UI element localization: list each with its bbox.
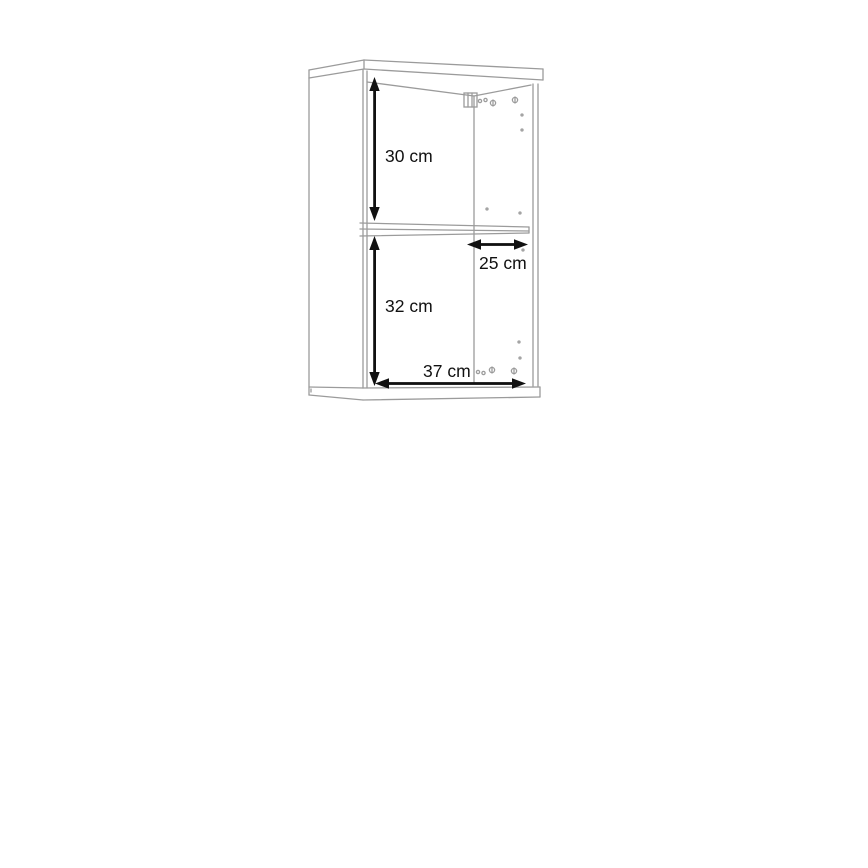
page-canvas: 30 cm 25 cm 32 cm 37 cm — [0, 0, 868, 868]
dimension-labels: 30 cm 25 cm 32 cm 37 cm — [385, 146, 527, 381]
cabinet-right-panel — [533, 84, 538, 386]
cabinet-interior-top-edges — [367, 82, 531, 96]
dim-label-32cm: 32 cm — [385, 296, 433, 316]
dim-label-30cm: 30 cm — [385, 146, 433, 166]
shelf-pin-holes-upper — [521, 114, 523, 131]
dim-arrow-25cm — [467, 239, 528, 249]
dim-arrow-30cm — [369, 77, 379, 221]
cabinet-left-panel — [309, 70, 367, 395]
cabinet-top-panel — [309, 60, 543, 80]
cabinet-bottom-panel — [309, 387, 540, 400]
dim-label-37cm: 37 cm — [423, 361, 471, 381]
cabinet-outline — [309, 60, 543, 400]
shelf-pin-holes-lower — [518, 341, 521, 359]
bracket-screw-holes — [478, 97, 517, 106]
cabinet-diagram-svg: 30 cm 25 cm 32 cm 37 cm — [0, 0, 868, 868]
dim-label-25cm: 25 cm — [479, 253, 527, 273]
bottom-screw-holes — [476, 367, 516, 375]
dim-arrow-32cm — [369, 236, 379, 386]
cabinet-middle-shelf — [360, 223, 529, 236]
